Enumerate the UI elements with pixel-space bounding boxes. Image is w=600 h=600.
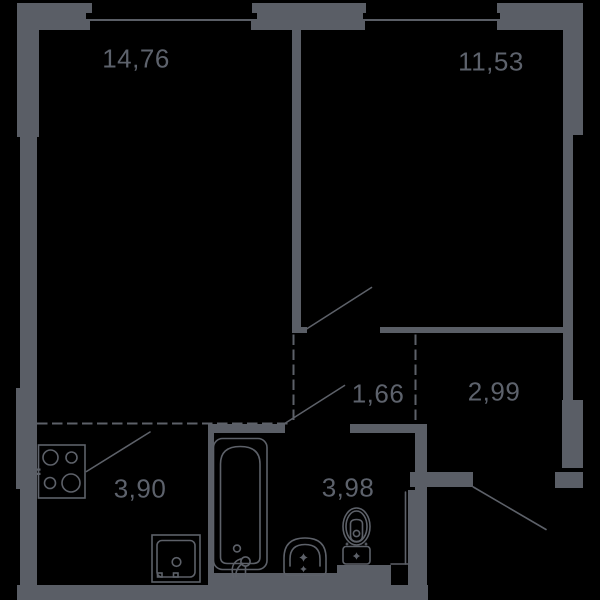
bedroom-door-swing [307,288,372,330]
vent-shaft [391,492,408,564]
kitchen-leader-line [87,432,151,472]
fixtures-layer [0,0,600,600]
entry-door-swing [473,487,546,530]
toilet-icon [343,508,370,564]
area-label-bedroom: 11,53 [458,47,524,78]
area-label-bathroom: 3,98 [322,473,375,504]
stove-icon [37,445,85,498]
area-label-entry-hall: 2,99 [468,377,521,408]
area-label-corridor: 1,66 [352,379,405,410]
washing-machine-icon [152,535,200,582]
bathtub-icon [214,439,268,578]
floor-plan: 14,76 11,53 1,66 2,99 3,90 3,98 [0,0,600,600]
area-label-kitchen: 3,90 [114,474,167,505]
area-label-living-room: 14,76 [102,44,170,75]
sink-icon [284,538,326,576]
